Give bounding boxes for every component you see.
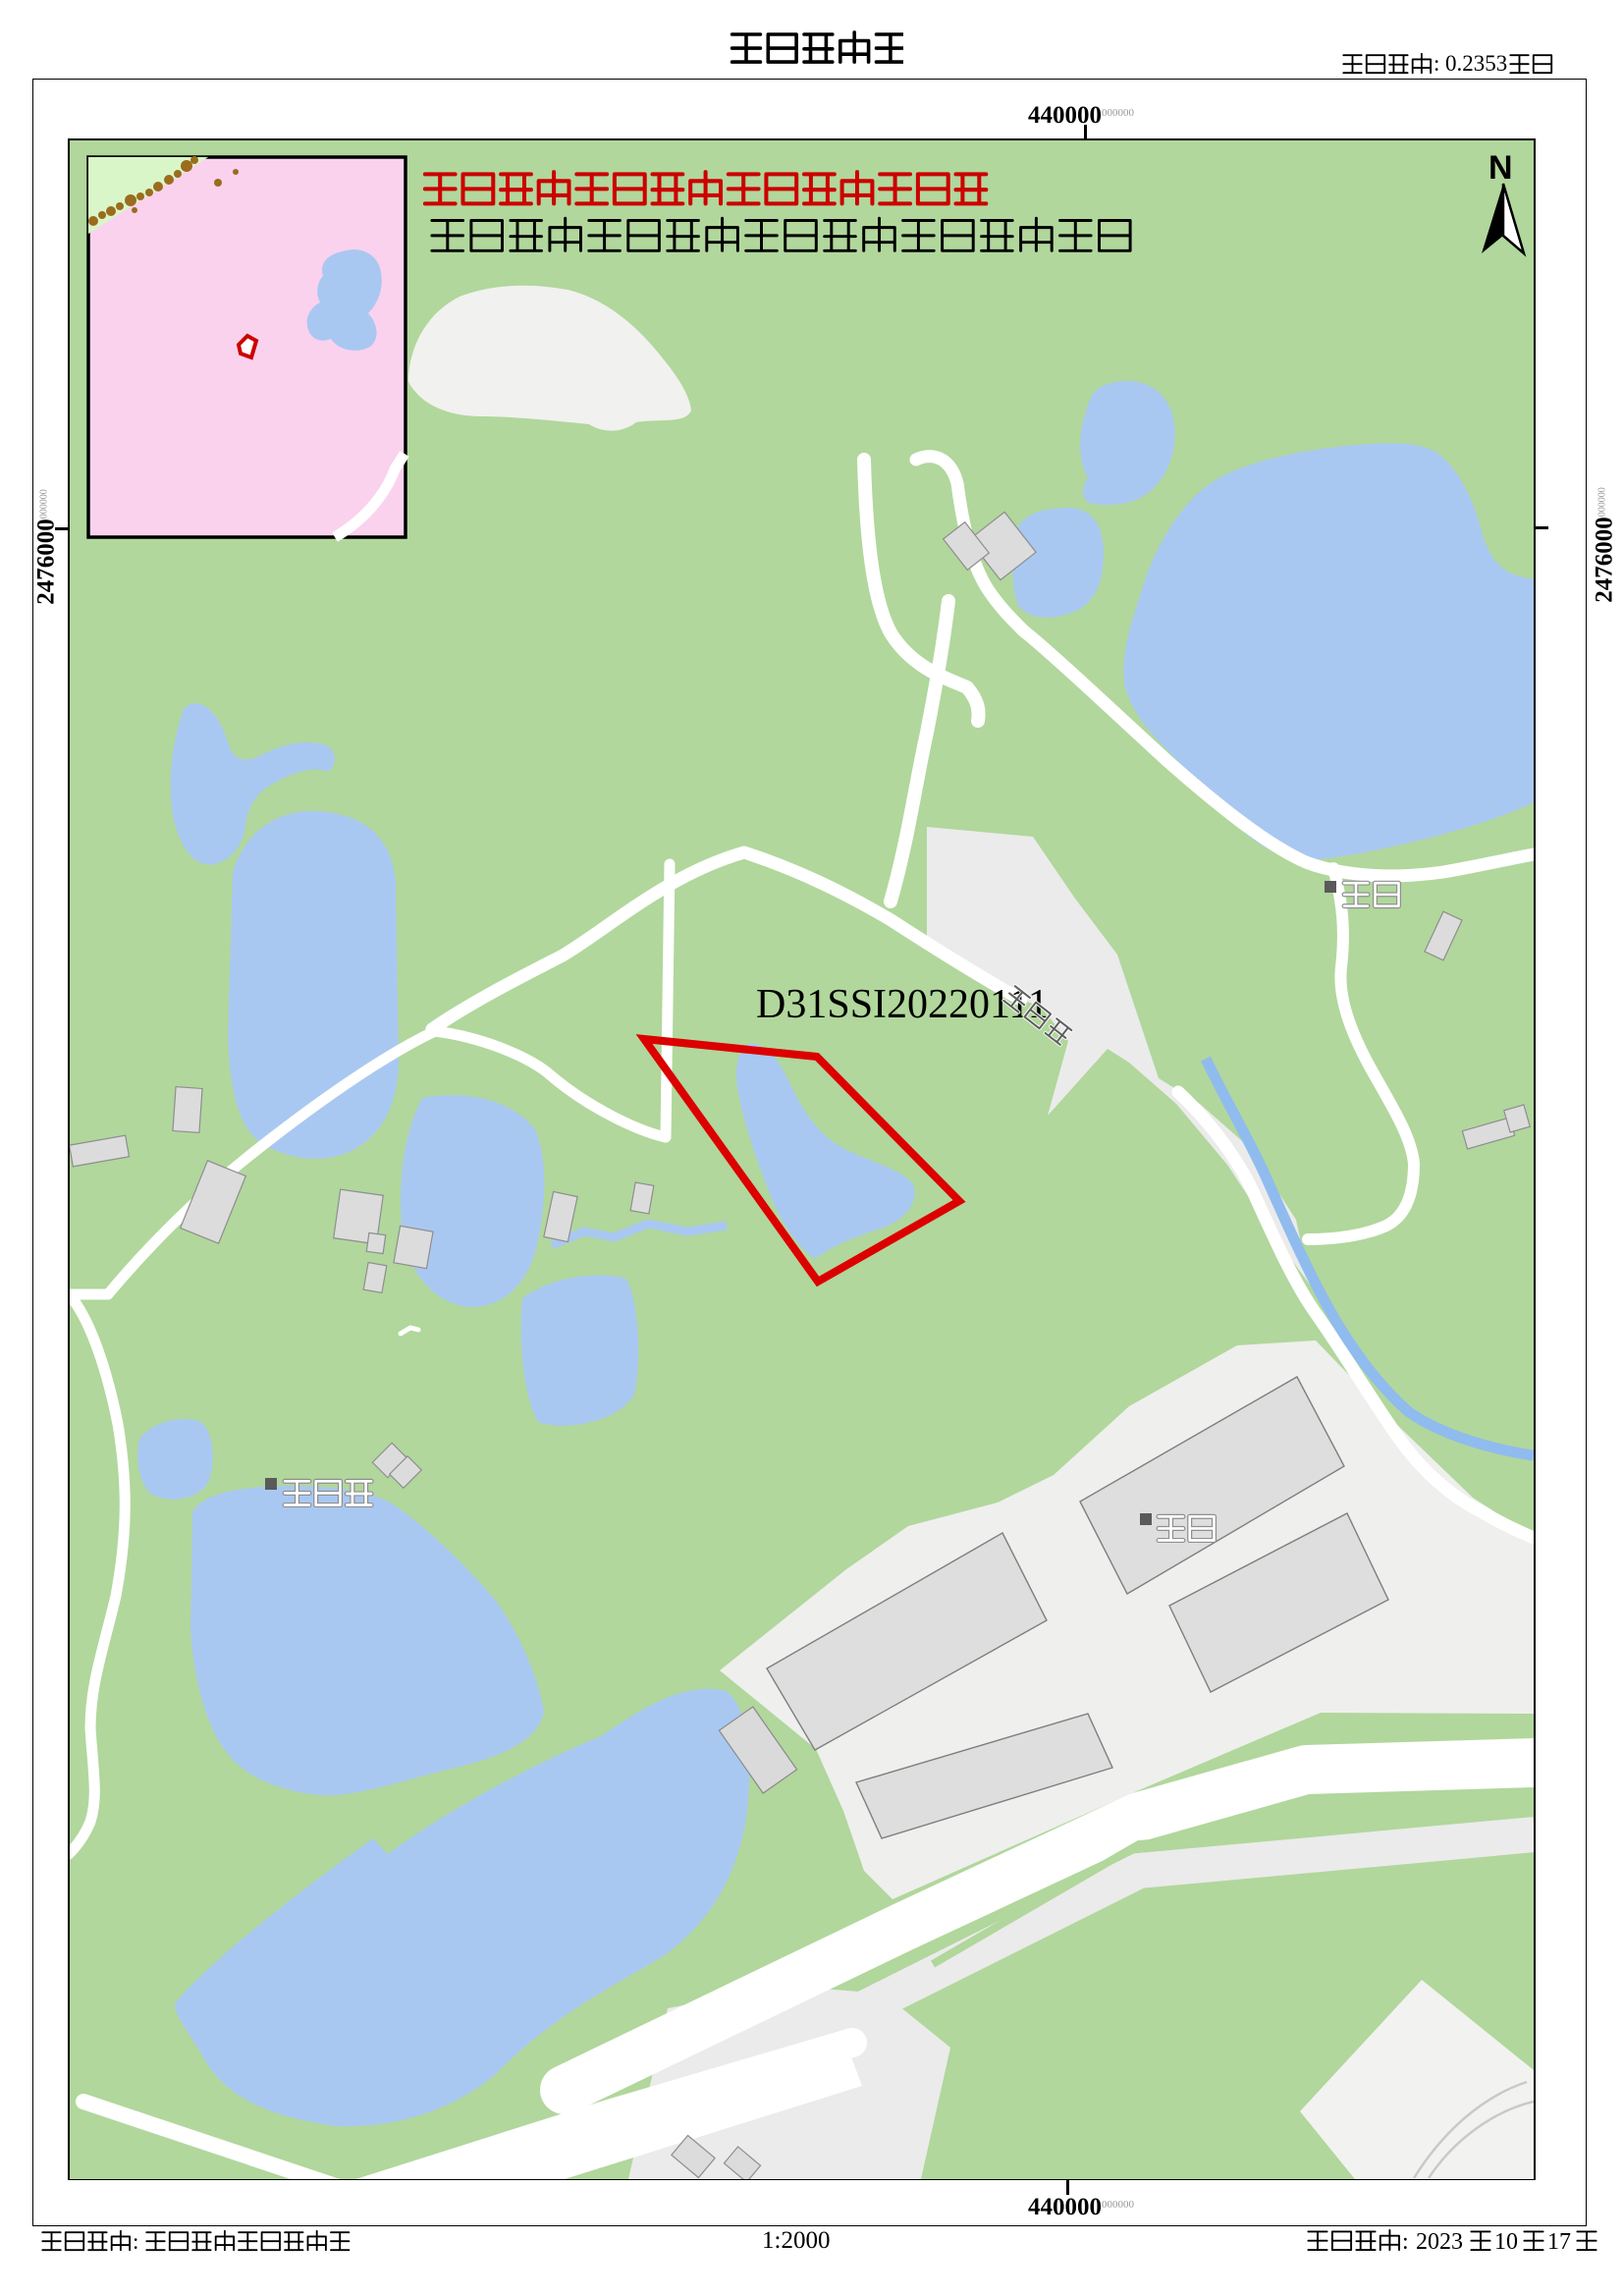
svg-text:2023: 2023 <box>1416 2229 1463 2255</box>
svg-text::: : <box>133 2229 138 2254</box>
svg-text:D31SSI20220111: D31SSI20220111 <box>756 982 1049 1027</box>
svg-text:17: 17 <box>1547 2229 1571 2255</box>
svg-text:0.2353: 0.2353 <box>1445 51 1507 76</box>
svg-text:N: N <box>1488 149 1513 187</box>
svg-text::: : <box>1402 2229 1409 2255</box>
svg-text:10: 10 <box>1494 2229 1518 2255</box>
svg-text::: : <box>1434 51 1439 76</box>
